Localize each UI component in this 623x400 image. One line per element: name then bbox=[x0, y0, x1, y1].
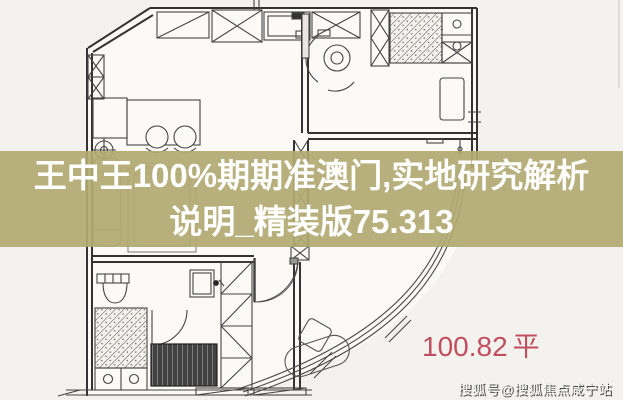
area-unit: 平 bbox=[513, 332, 540, 362]
area-value: 100.82 bbox=[422, 331, 508, 362]
bed-dark-mat bbox=[151, 344, 217, 386]
page: 王中王100%期期准澳门,实地研究解析 说明_精装版75.313 100.82平… bbox=[0, 0, 623, 400]
title-line-1: 王中王100%期期准澳门,实地研究解析 bbox=[34, 153, 590, 199]
title-banner: 王中王100%期期准澳门,实地研究解析 说明_精装版75.313 bbox=[0, 151, 623, 247]
area-label: 100.82平 bbox=[422, 332, 540, 362]
title-line-2: 说明_精装版75.313 bbox=[169, 199, 453, 245]
watermark: 搜狐号@搜狐焦点咸宁站 bbox=[458, 378, 612, 398]
